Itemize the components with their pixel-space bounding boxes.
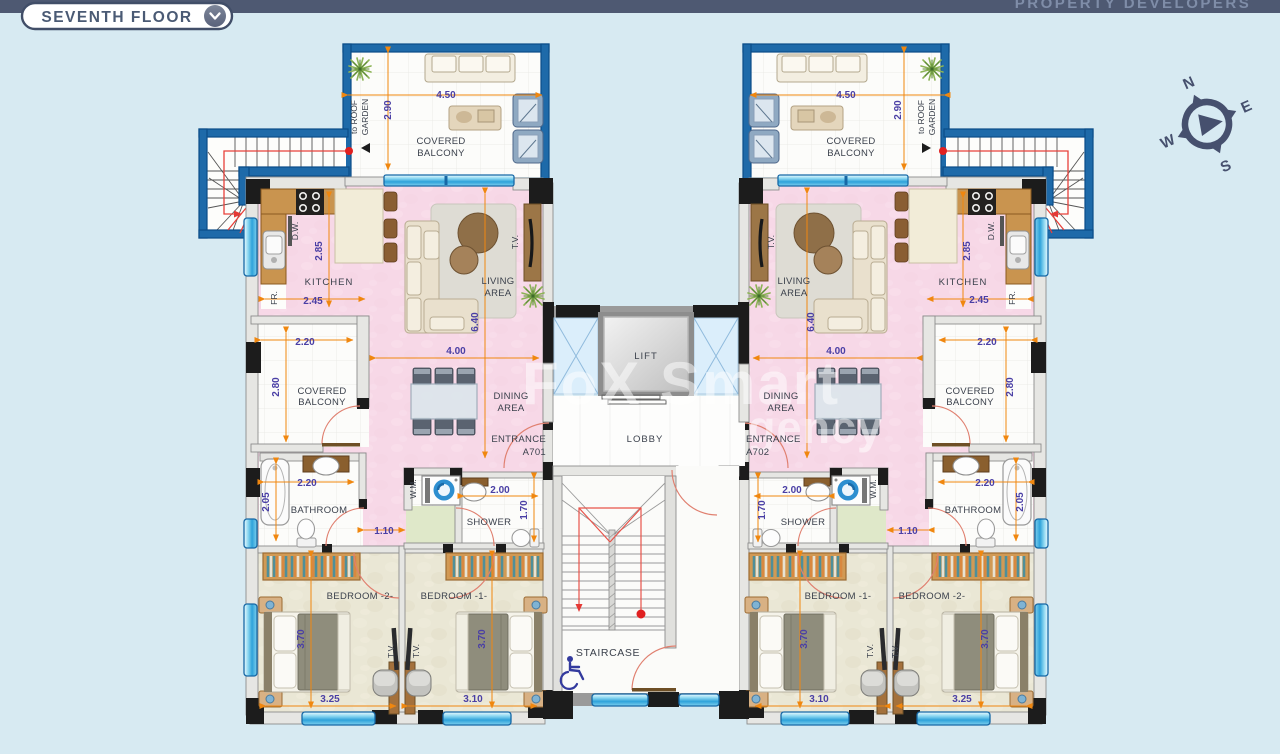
svg-text:4.00: 4.00 (826, 346, 846, 357)
svg-text:AREA: AREA (484, 288, 511, 299)
svg-text:1.70: 1.70 (757, 500, 768, 520)
svg-text:STAIRCASE: STAIRCASE (576, 647, 640, 659)
svg-text:BATHROOM: BATHROOM (291, 505, 348, 516)
svg-text:T.V.: T.V. (386, 644, 396, 658)
svg-text:3.70: 3.70 (296, 629, 307, 649)
svg-text:1.10: 1.10 (374, 526, 394, 537)
svg-text:GARDEN: GARDEN (360, 99, 370, 135)
svg-text:COVERED: COVERED (826, 136, 875, 147)
svg-text:COVERED: COVERED (945, 386, 994, 397)
svg-text:BALCONY: BALCONY (298, 397, 346, 408)
svg-text:2.05: 2.05 (1015, 492, 1026, 512)
svg-text:SHOWER: SHOWER (467, 517, 512, 528)
svg-text:3.10: 3.10 (809, 694, 829, 705)
svg-text:AREA: AREA (780, 288, 807, 299)
svg-text:T.V.: T.V. (865, 644, 875, 658)
svg-text:A702: A702 (746, 447, 769, 458)
svg-text:T.V.: T.V. (766, 235, 776, 249)
svg-text:LIVING: LIVING (482, 276, 515, 287)
svg-text:ENTRANCE: ENTRANCE (746, 434, 801, 445)
svg-text:2.85: 2.85 (314, 241, 325, 261)
svg-text:AREA: AREA (767, 403, 794, 414)
svg-text:2.45: 2.45 (303, 296, 323, 307)
svg-text:2.80: 2.80 (271, 377, 282, 397)
svg-text:ENTRANCE: ENTRANCE (491, 434, 546, 445)
svg-text:DINING: DINING (493, 391, 528, 402)
svg-text:BEDROOM -1-: BEDROOM -1- (805, 591, 872, 602)
svg-text:KITCHEN: KITCHEN (305, 277, 354, 288)
svg-text:BEDROOM -1-: BEDROOM -1- (421, 591, 488, 602)
svg-text:BALCONY: BALCONY (946, 397, 994, 408)
svg-text:6.40: 6.40 (470, 312, 481, 332)
svg-text:LOBBY: LOBBY (627, 434, 664, 445)
svg-text:D.W.: D.W. (290, 222, 300, 240)
svg-text:3.70: 3.70 (980, 629, 991, 649)
svg-text:COVERED: COVERED (416, 136, 465, 147)
svg-text:1.10: 1.10 (898, 526, 918, 537)
svg-text:3.70: 3.70 (799, 629, 810, 649)
svg-text:D.W.: D.W. (986, 222, 996, 240)
svg-text:4.50: 4.50 (436, 90, 456, 101)
svg-text:COVERED: COVERED (297, 386, 346, 397)
svg-text:DINING: DINING (763, 391, 798, 402)
svg-text:4.00: 4.00 (446, 346, 466, 357)
svg-text:GARDEN: GARDEN (927, 99, 937, 135)
svg-text:2.90: 2.90 (383, 100, 394, 120)
svg-text:AREA: AREA (497, 403, 524, 414)
svg-text:2.45: 2.45 (969, 295, 989, 306)
svg-text:2.20: 2.20 (297, 478, 317, 489)
svg-text:BEDROOM -2-: BEDROOM -2- (899, 591, 966, 602)
svg-text:2.80: 2.80 (1005, 377, 1016, 397)
svg-text:W.M.: W.M. (408, 479, 418, 498)
svg-text:2.00: 2.00 (782, 485, 802, 496)
svg-text:2.05: 2.05 (261, 492, 272, 512)
svg-text:FR.: FR. (1007, 291, 1017, 305)
svg-text:3.70: 3.70 (477, 629, 488, 649)
svg-text:2.90: 2.90 (893, 100, 904, 120)
svg-text:2.00: 2.00 (490, 485, 510, 496)
svg-text:FR.: FR. (269, 291, 279, 305)
svg-text:A701: A701 (523, 447, 546, 458)
svg-text:BALCONY: BALCONY (827, 148, 875, 159)
svg-text:BATHROOM: BATHROOM (945, 505, 1002, 516)
svg-text:W.M.: W.M. (868, 479, 878, 498)
svg-text:4.50: 4.50 (836, 90, 856, 101)
svg-text:to ROOF: to ROOF (916, 100, 926, 134)
svg-text:2.85: 2.85 (962, 241, 973, 261)
svg-text:1.70: 1.70 (519, 500, 530, 520)
svg-text:T.V.: T.V. (510, 235, 520, 249)
svg-text:2.20: 2.20 (295, 337, 315, 348)
svg-text:3.10: 3.10 (463, 694, 483, 705)
svg-text:to ROOF: to ROOF (349, 100, 359, 134)
svg-text:2.20: 2.20 (977, 337, 997, 348)
svg-text:3.25: 3.25 (320, 694, 340, 705)
svg-text:BALCONY: BALCONY (417, 148, 465, 159)
svg-text:SHOWER: SHOWER (781, 517, 826, 528)
svg-text:6.40: 6.40 (806, 312, 817, 332)
svg-text:LIVING: LIVING (778, 276, 811, 287)
svg-text:SEVENTH FLOOR: SEVENTH FLOOR (41, 9, 192, 26)
svg-text:3.25: 3.25 (952, 694, 972, 705)
svg-text:2.20: 2.20 (975, 478, 995, 489)
svg-text:BEDROOM -2-: BEDROOM -2- (327, 591, 394, 602)
svg-text:T.V.: T.V. (411, 644, 421, 658)
svg-text:KITCHEN: KITCHEN (939, 277, 988, 288)
svg-text:LIFT: LIFT (634, 351, 658, 362)
svg-text:PROPERTY DEVELOPERS: PROPERTY DEVELOPERS (1015, 0, 1251, 12)
svg-text:T.V.: T.V. (890, 644, 900, 658)
